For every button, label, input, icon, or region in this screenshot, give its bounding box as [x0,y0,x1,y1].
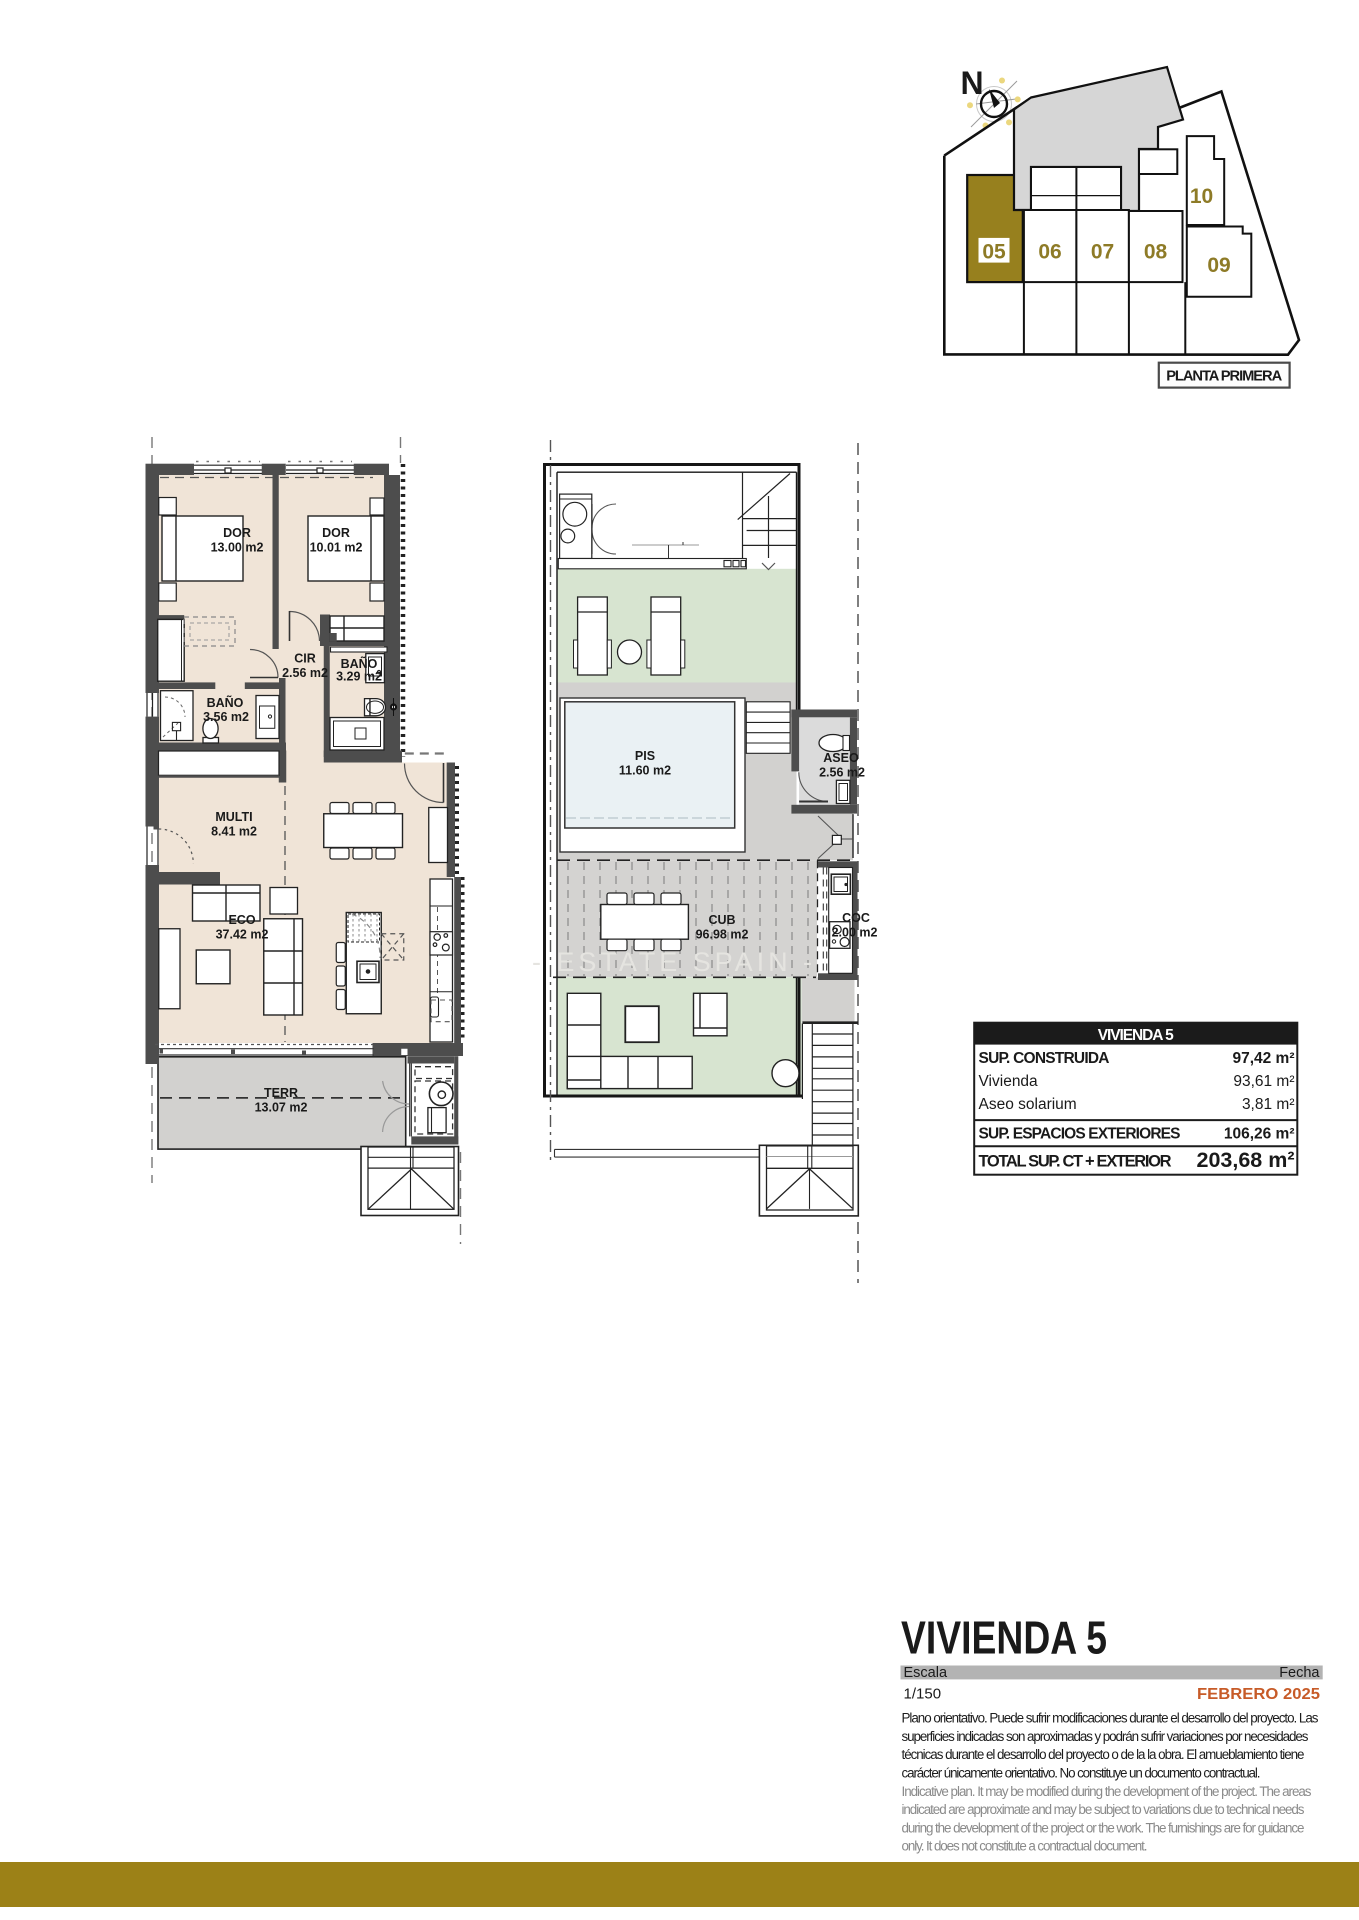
svg-text:N: N [960,65,983,101]
svg-text:MULTI: MULTI [215,810,252,824]
svg-text:09: 09 [1207,254,1230,277]
svg-text:COC: COC [842,911,870,925]
svg-text:TERR: TERR [264,1086,298,1100]
svg-text:10: 10 [1190,185,1213,208]
svg-text:08: 08 [1144,241,1168,264]
svg-text:2.00 m2: 2.00 m2 [832,926,878,940]
svg-text:13.07 m2: 13.07 m2 [255,1101,308,1115]
svg-text:106,26 m²: 106,26 m² [1224,1126,1295,1143]
svg-text:37.42 m2: 37.42 m2 [216,928,269,942]
svg-text:Escala: Escala [904,1665,948,1681]
svg-text:97,42 m²: 97,42 m² [1232,1050,1294,1067]
svg-text:TOTAL SUP. CT + EXTERIOR: TOTAL SUP. CT + EXTERIOR [979,1152,1172,1170]
svg-text:SUP. ESPACIOS EXTERIORES: SUP. ESPACIOS EXTERIORES [979,1126,1181,1143]
svg-text:DOR: DOR [223,526,251,540]
svg-text:CIR: CIR [294,652,316,666]
svg-text:during the development of the: during the development of the project or… [902,1820,1305,1835]
svg-text:11.60 m2: 11.60 m2 [619,764,671,778]
svg-text:Fecha: Fecha [1279,1665,1320,1681]
svg-text:only. It does not constitute a: only. It does not constitute a contractu… [902,1839,1148,1854]
svg-text:8.41 m2: 8.41 m2 [211,825,257,839]
svg-text:2.56 m2: 2.56 m2 [282,666,328,680]
svg-text:2.56 m2: 2.56 m2 [819,766,865,780]
svg-text:- ESTATE SPAIN -: - ESTATE SPAIN - [532,947,818,977]
svg-text:BAÑO: BAÑO [207,695,244,710]
svg-text:05: 05 [982,241,1006,264]
svg-text:Vivienda: Vivienda [979,1073,1039,1090]
svg-text:VIVIENDA 5: VIVIENDA 5 [901,1612,1107,1664]
svg-text:ASEO: ASEO [823,751,859,765]
svg-text:Indicative plan. It may be mod: Indicative plan. It may be modified duri… [902,1784,1312,1799]
svg-text:PLANTA PRIMERA: PLANTA PRIMERA [1166,369,1282,385]
svg-text:93,61 m²: 93,61 m² [1233,1073,1294,1090]
svg-text:DOR: DOR [322,526,350,540]
svg-text:06: 06 [1038,241,1061,264]
svg-text:técnicas durante el desarrollo: técnicas durante el desarrollo del proye… [902,1747,1305,1762]
svg-text:carácter únicamente orientativ: carácter únicamente orientativo. No cons… [902,1766,1261,1781]
svg-text:07: 07 [1091,241,1114,264]
svg-text:FEBRERO 2025: FEBRERO 2025 [1197,1686,1320,1703]
svg-text:1/150: 1/150 [904,1686,942,1703]
svg-text:96.98 m2: 96.98 m2 [696,928,749,942]
svg-text:indicated are approximate and: indicated are approximate and may be sub… [902,1802,1305,1817]
svg-text:3,81 m²: 3,81 m² [1242,1096,1295,1113]
svg-text:ECO: ECO [228,913,255,927]
svg-text:3.56 m2: 3.56 m2 [203,710,249,724]
svg-text:203,68 m²: 203,68 m² [1196,1148,1294,1172]
svg-text:10.01 m2: 10.01 m2 [310,541,363,555]
svg-text:PIS: PIS [635,749,655,763]
svg-text:Aseo solarium: Aseo solarium [979,1096,1077,1113]
svg-text:Plano orientativo. Puede sufri: Plano orientativo. Puede sufrir modifica… [902,1711,1319,1726]
svg-text:CUB: CUB [708,913,735,927]
svg-text:13.00 m2: 13.00 m2 [211,541,264,555]
svg-text:superficies indicadas son apro: superficies indicadas son aproximadas y … [902,1729,1309,1744]
svg-text:VIVIENDA 5: VIVIENDA 5 [1098,1027,1174,1044]
svg-text:SUP. CONSTRUIDA: SUP. CONSTRUIDA [979,1050,1110,1067]
svg-text:3.29 m2: 3.29 m2 [336,670,382,684]
